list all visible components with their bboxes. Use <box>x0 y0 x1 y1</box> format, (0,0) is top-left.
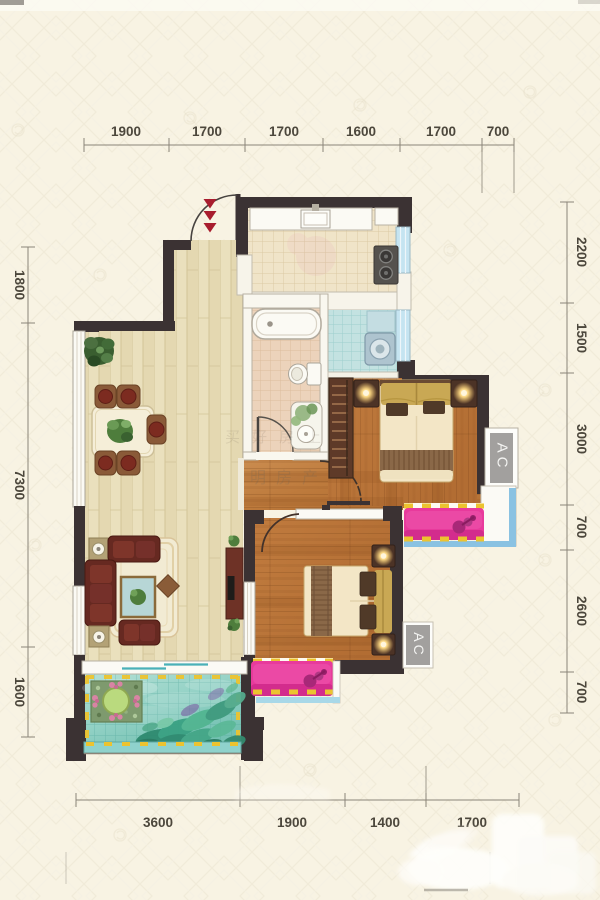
svg-text:1900: 1900 <box>111 124 141 139</box>
svg-text:3000: 3000 <box>574 424 589 454</box>
svg-text:1800: 1800 <box>12 270 27 300</box>
svg-text:1400: 1400 <box>370 815 400 830</box>
svg-text:700: 700 <box>574 516 589 539</box>
svg-text:1900: 1900 <box>277 815 307 830</box>
svg-text:2600: 2600 <box>574 596 589 626</box>
svg-text:AC: AC <box>494 443 511 472</box>
svg-text:700: 700 <box>487 124 510 139</box>
svg-text:7300: 7300 <box>12 470 27 500</box>
svg-text:700: 700 <box>574 681 589 704</box>
svg-text:2200: 2200 <box>574 237 589 267</box>
svg-text:1600: 1600 <box>12 677 27 707</box>
svg-text:1600: 1600 <box>346 124 376 139</box>
svg-text:AC: AC <box>411 632 427 657</box>
svg-text:买好房上: 买好房上 <box>225 429 333 446</box>
svg-text:1500: 1500 <box>574 323 589 353</box>
svg-text:1700: 1700 <box>426 124 456 139</box>
svg-text:明房产: 明房产 <box>250 469 328 487</box>
svg-text:1700: 1700 <box>269 124 299 139</box>
svg-text:1700: 1700 <box>192 124 222 139</box>
svg-text:3600: 3600 <box>143 815 173 830</box>
